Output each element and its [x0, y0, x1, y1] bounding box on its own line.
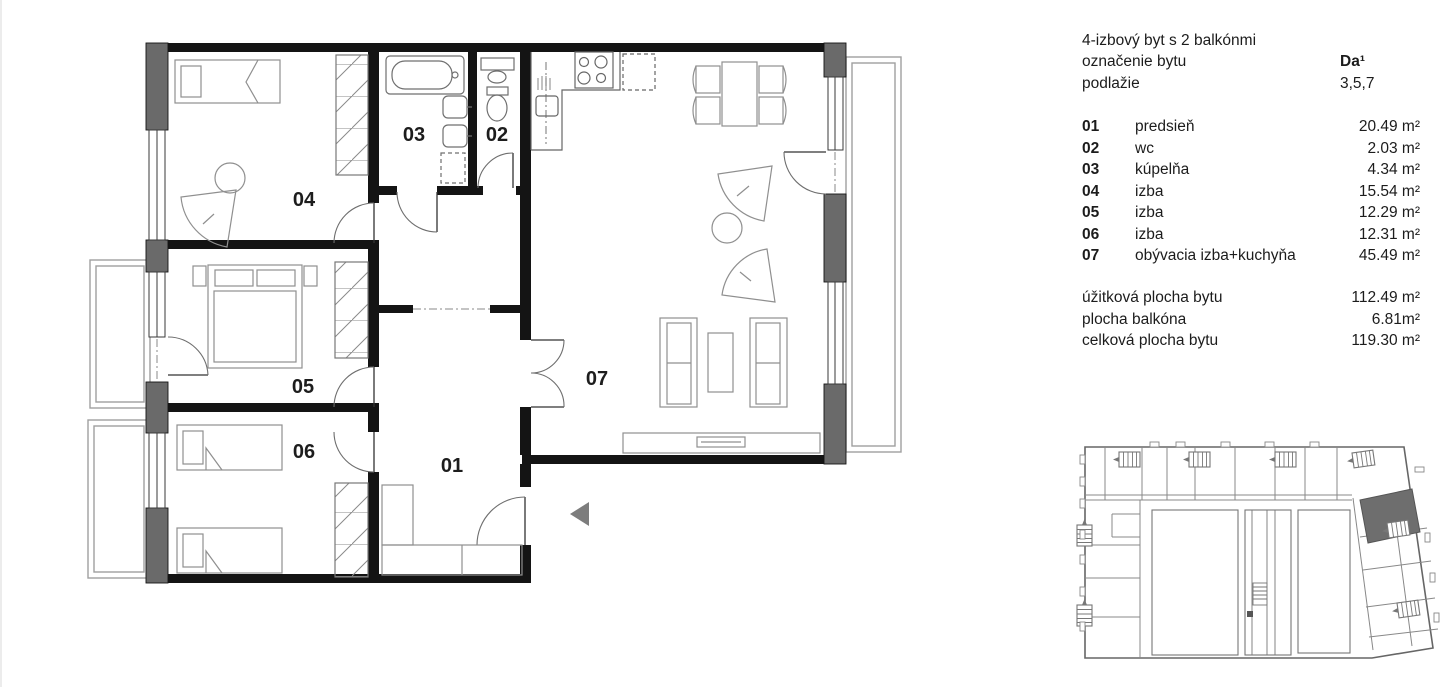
bathroom-fixtures — [386, 56, 472, 183]
building-overview — [1075, 437, 1447, 685]
sofa-group — [623, 318, 820, 453]
designation-label: označenie bytu — [1082, 53, 1186, 70]
total-row: plocha balkóna6.81m² — [1082, 309, 1420, 330]
room-row: 06izba12.31 m² — [1082, 224, 1420, 245]
courtyards — [1152, 510, 1350, 655]
floor-value: 3,5,7 — [1340, 73, 1374, 94]
room-05-furniture — [193, 262, 368, 368]
dining-set — [693, 62, 786, 126]
designation-value: Da¹ — [1340, 51, 1365, 72]
room-row: 05izba12.29 m² — [1082, 202, 1420, 223]
room-row: 03kúpelňa4.34 m² — [1082, 159, 1420, 180]
room-row: 04izba15.54 m² — [1082, 181, 1420, 202]
entrance-arrow — [570, 502, 589, 526]
room-row: 02wc2.03 m² — [1082, 138, 1420, 159]
floor-plan: 01 02 03 04 05 06 07 — [0, 0, 1050, 687]
room-04-furniture — [175, 55, 368, 247]
room-label-01: 01 — [441, 455, 463, 477]
room-row: 01predsieň20.49 m² — [1082, 116, 1420, 137]
total-row: celková plocha bytu119.30 m² — [1082, 330, 1420, 351]
room-label-04: 04 — [293, 189, 316, 211]
kitchen — [531, 52, 655, 150]
room-label-02: 02 — [486, 124, 508, 146]
hall-wardrobe — [382, 485, 522, 575]
total-row: úžitková plocha bytu112.49 m² — [1082, 287, 1420, 308]
balcony-left-upper — [90, 260, 150, 408]
balcony-right — [846, 57, 901, 452]
apartment-title: 4-izbový byt s 2 balkónmi — [1082, 30, 1420, 51]
room-label-07: 07 — [586, 368, 608, 390]
floor-row: podlažie 3,5,7 — [1082, 73, 1420, 94]
apartment-title-text: 4-izbový byt s 2 balkónmi — [1082, 32, 1256, 49]
page: 01 02 03 04 05 06 07 4-izbový byt s 2 ba… — [0, 0, 1454, 687]
doors — [168, 152, 826, 545]
balcony-left-lower — [88, 420, 150, 578]
totals: úžitková plocha bytu112.49 m² plocha bal… — [1082, 287, 1420, 351]
wc-fixtures — [481, 58, 514, 121]
floor-label: podlažie — [1082, 75, 1140, 92]
room-table: 01predsieň20.49 m² 02wc2.03 m² 03kúpelňa… — [1082, 116, 1420, 266]
room-label-06: 06 — [293, 441, 315, 463]
room-row: 07obývacia izba+kuchyňa45.49 m² — [1082, 245, 1420, 266]
designation-row: označenie bytu Da¹ — [1082, 51, 1420, 72]
room-06-furniture — [177, 425, 368, 577]
armchair-group — [712, 166, 775, 302]
info-panel: 4-izbový byt s 2 balkónmi označenie bytu… — [1082, 30, 1420, 352]
room-label-03: 03 — [403, 124, 425, 146]
room-label-05: 05 — [292, 376, 314, 398]
